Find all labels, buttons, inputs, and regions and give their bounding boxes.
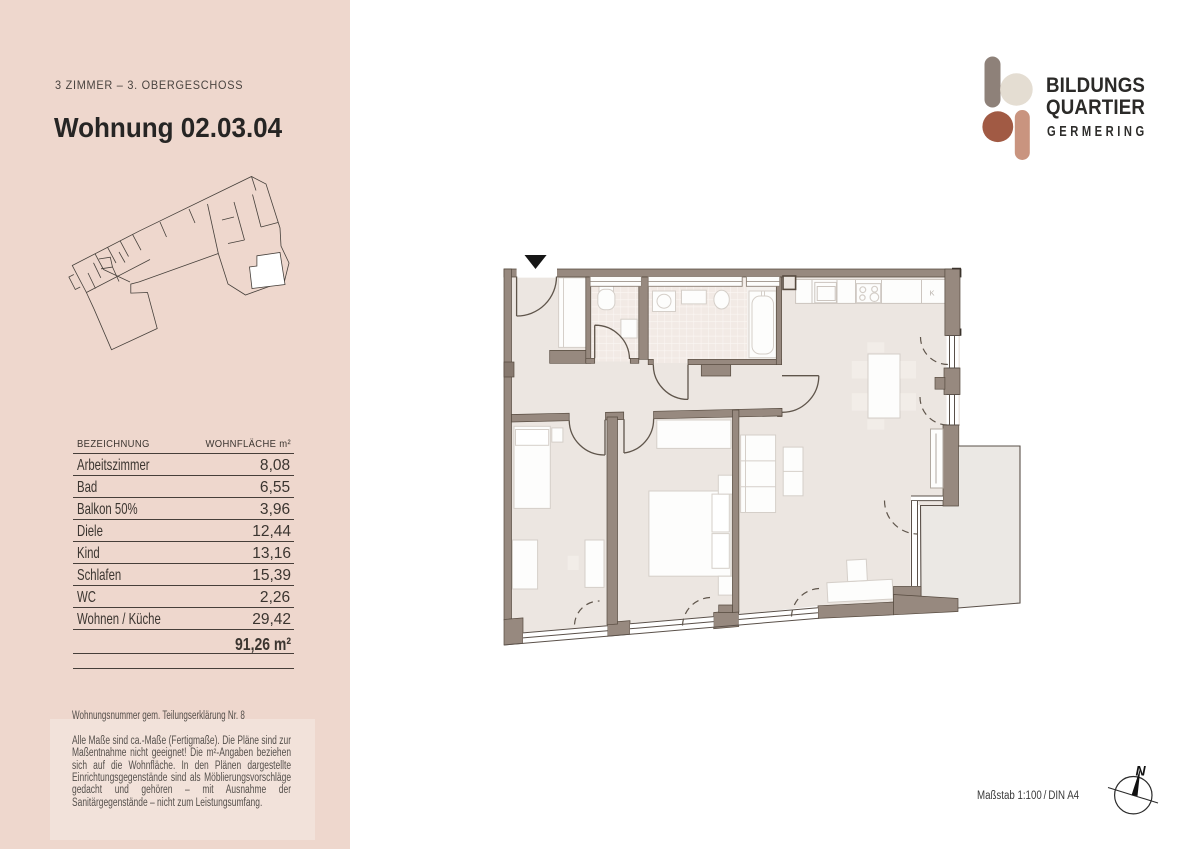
svg-text:K: K	[930, 289, 935, 298]
svg-text:N: N	[1136, 763, 1147, 779]
